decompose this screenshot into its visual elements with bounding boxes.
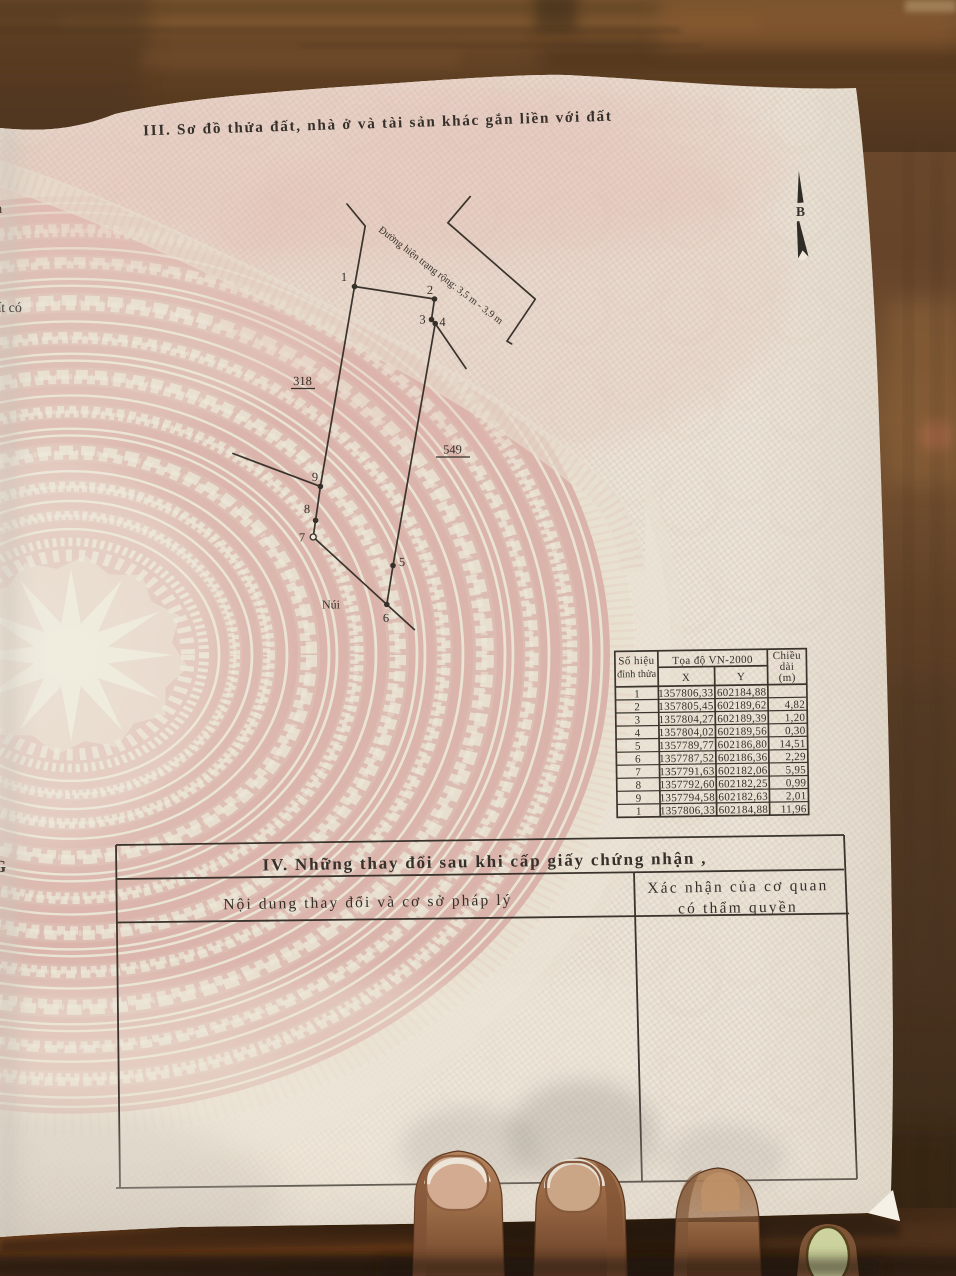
svg-text:Y: Y bbox=[737, 671, 746, 683]
svg-text:602182,63: 602182,63 bbox=[718, 791, 768, 804]
svg-text:(m): (m) bbox=[779, 672, 796, 684]
svg-text:1357806,33: 1357806,33 bbox=[658, 687, 714, 700]
svg-text:7: 7 bbox=[299, 531, 305, 545]
svg-text:B: B bbox=[796, 204, 805, 219]
svg-text:602189,56: 602189,56 bbox=[717, 725, 767, 738]
svg-text:9: 9 bbox=[636, 793, 642, 805]
svg-text:602189,62: 602189,62 bbox=[717, 699, 767, 712]
svg-text:4: 4 bbox=[635, 727, 641, 739]
svg-text:6: 6 bbox=[635, 753, 641, 765]
svg-text:1357792,60: 1357792,60 bbox=[659, 778, 715, 791]
svg-text:602182,06: 602182,06 bbox=[718, 765, 768, 778]
svg-text:1,20: 1,20 bbox=[785, 712, 806, 724]
svg-text:602186,36: 602186,36 bbox=[718, 752, 768, 765]
svg-text:4,82: 4,82 bbox=[785, 699, 806, 711]
svg-text:1357787,52: 1357787,52 bbox=[659, 752, 714, 765]
svg-text:1357806,33: 1357806,33 bbox=[660, 805, 716, 818]
svg-text:2,29: 2,29 bbox=[785, 751, 806, 763]
svg-text:7: 7 bbox=[635, 767, 641, 779]
svg-text:1357794,58: 1357794,58 bbox=[660, 792, 716, 805]
svg-text:5: 5 bbox=[635, 740, 641, 752]
svg-text:đỉnh thửa: đỉnh thửa bbox=[617, 669, 657, 681]
svg-text:0,30: 0,30 bbox=[785, 725, 806, 737]
svg-text:3: 3 bbox=[419, 313, 425, 327]
svg-text:5,95: 5,95 bbox=[786, 764, 807, 776]
svg-text:9: 9 bbox=[312, 470, 318, 484]
svg-text:1357791,63: 1357791,63 bbox=[659, 765, 715, 778]
svg-text:Tọa độ VN-2000: Tọa độ VN-2000 bbox=[672, 654, 753, 667]
svg-text:318: 318 bbox=[293, 374, 312, 388]
svg-text:602184,88: 602184,88 bbox=[717, 686, 767, 699]
svg-text:có thẩm quyền: có thẩm quyền bbox=[678, 899, 798, 918]
svg-text:602189,39: 602189,39 bbox=[717, 712, 767, 725]
svg-text:6: 6 bbox=[383, 611, 389, 625]
svg-text:1357804,02: 1357804,02 bbox=[659, 726, 714, 739]
svg-text:X: X bbox=[682, 672, 691, 684]
svg-text:14,51: 14,51 bbox=[779, 738, 805, 750]
svg-text:Số hiệu: Số hiệu bbox=[618, 655, 654, 668]
svg-text:549: 549 bbox=[443, 443, 462, 457]
svg-text:11,96: 11,96 bbox=[781, 803, 807, 815]
svg-text:5: 5 bbox=[399, 555, 405, 569]
svg-text:602184,88: 602184,88 bbox=[719, 804, 769, 817]
svg-text:1: 1 bbox=[634, 688, 640, 700]
svg-text:3: 3 bbox=[634, 714, 640, 726]
svg-text:2: 2 bbox=[427, 283, 433, 297]
svg-text:0,99: 0,99 bbox=[786, 777, 807, 789]
svg-text:1357805,45: 1357805,45 bbox=[658, 700, 714, 713]
svg-text:1357804,27: 1357804,27 bbox=[658, 713, 714, 726]
svg-text:2,01: 2,01 bbox=[786, 790, 807, 802]
svg-text:1: 1 bbox=[341, 270, 347, 284]
svg-text:Núi: Núi bbox=[322, 598, 341, 612]
svg-text:8: 8 bbox=[635, 780, 641, 792]
svg-text:1357789,77: 1357789,77 bbox=[659, 739, 715, 752]
svg-text:602186,80: 602186,80 bbox=[718, 739, 768, 752]
svg-text:602182,25: 602182,25 bbox=[718, 778, 768, 791]
svg-text:4: 4 bbox=[439, 315, 446, 329]
svg-text:2: 2 bbox=[634, 701, 640, 713]
svg-text:8: 8 bbox=[304, 502, 310, 516]
svg-text:1: 1 bbox=[636, 806, 642, 818]
svg-text:Xác nhận của cơ quan: Xác nhận của cơ quan bbox=[647, 877, 829, 897]
